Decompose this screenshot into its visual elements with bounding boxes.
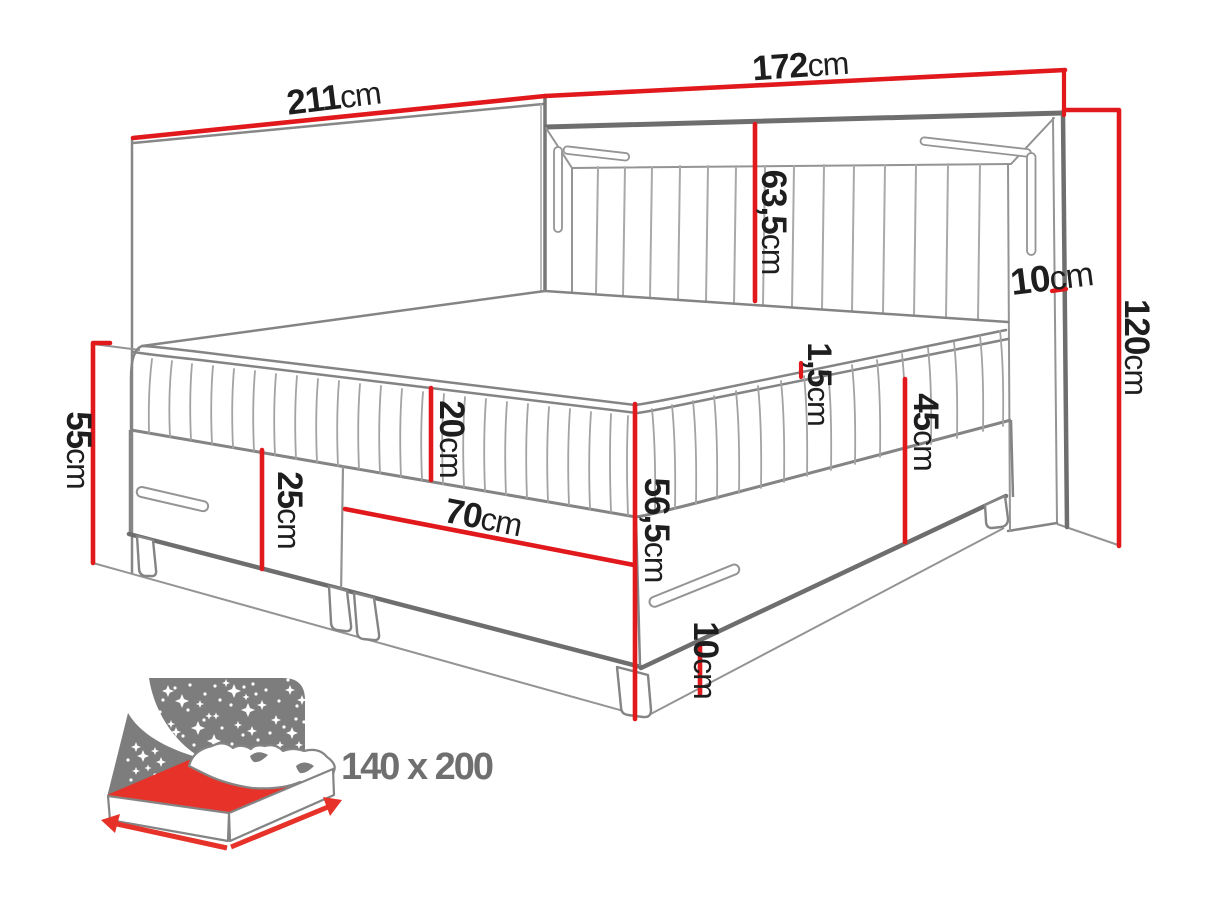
svg-text:63,5cm: 63,5cm bbox=[754, 170, 793, 275]
svg-text:56,5cm: 56,5cm bbox=[637, 478, 676, 583]
svg-text:1,5cm: 1,5cm bbox=[800, 342, 838, 426]
svg-text:140 x 200: 140 x 200 bbox=[341, 746, 493, 788]
svg-text:172cm: 172cm bbox=[751, 43, 850, 89]
svg-text:20cm: 20cm bbox=[432, 400, 471, 478]
svg-text:10cm: 10cm bbox=[686, 621, 725, 699]
svg-text:120cm: 120cm bbox=[1117, 299, 1156, 395]
svg-text:55cm: 55cm bbox=[59, 411, 98, 489]
svg-text:25cm: 25cm bbox=[270, 471, 309, 549]
svg-text:45cm: 45cm bbox=[906, 393, 945, 471]
